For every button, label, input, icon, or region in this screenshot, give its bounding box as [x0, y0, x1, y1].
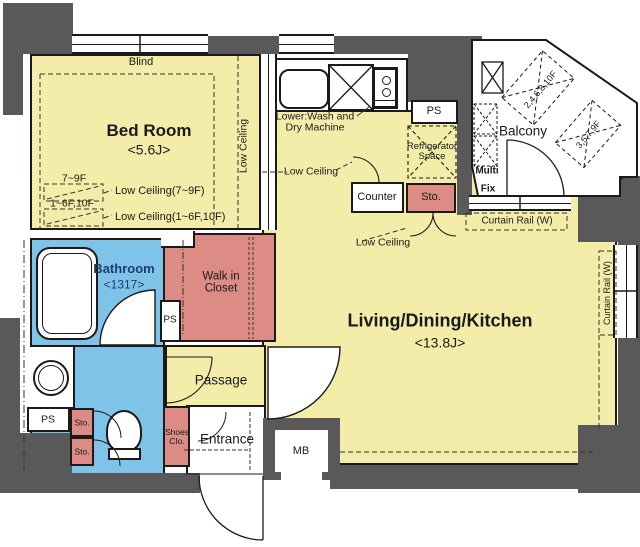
- balcony-floors-a-label: 2,4,6,8,10F: [523, 69, 560, 110]
- floor-plan: Blind Bed Room <5.6J> Low Ceiling 7~9F L…: [0, 0, 640, 547]
- bathroom-size: <1317>: [104, 279, 145, 292]
- wall-washroom-corner: [20, 433, 72, 473]
- bathroom-name: Bathroom: [93, 262, 154, 276]
- bedroom-size: <5.6J>: [128, 142, 171, 157]
- mb-label: MB: [293, 446, 310, 458]
- wall-bottom-ldk: [330, 465, 585, 489]
- partition-bedroom-ldk: [259, 54, 277, 230]
- blind-label: Blind: [129, 57, 153, 69]
- walk-in-closet-notch: [161, 231, 195, 248]
- wall-balcony-corner: [578, 176, 640, 242]
- low-ceiling-floors-1: 7~9F: [62, 173, 86, 184]
- wash-dry-line1: Lower:Wash and: [276, 111, 354, 123]
- ldk-name: Living/Dining/Kitchen: [348, 311, 533, 330]
- ldk-size: <13.8J>: [415, 335, 466, 350]
- balcony-name: Balcony: [499, 125, 547, 140]
- wash-dry-line2: Dry Machine: [286, 122, 345, 134]
- sto-2-label: Sto.: [74, 447, 89, 456]
- fix-label: Fix: [481, 185, 495, 196]
- ps-bottom-label: PS: [41, 414, 55, 425]
- curtain-rail-top-label: Curtain Rail (W): [481, 217, 552, 228]
- balcony-fixture: [601, 155, 624, 180]
- bedroom-name: Bed Room: [107, 122, 192, 140]
- shoes-closet-label: Shoes Clo.: [165, 428, 189, 446]
- washbasin-inner-line: [38, 365, 64, 391]
- room-ldk: [262, 110, 617, 465]
- partition-rail-line: [268, 54, 269, 230]
- wash-dry-label: Lower:Wash and Dry Machine: [276, 112, 354, 135]
- stove-burner-icon: [382, 88, 391, 97]
- wall-left-column: [0, 318, 20, 478]
- ps-top-label: PS: [427, 106, 442, 118]
- low-ceiling-text-1: Low Ceiling(7~9F): [115, 186, 205, 198]
- bedroom-low-ceiling-label: Low Ceiling: [238, 119, 249, 173]
- low-ceiling-text-2: Low Ceiling(1~6F,10F): [115, 212, 225, 224]
- wall-bottom-right-block: [578, 425, 640, 493]
- wall-top-left-column: [3, 3, 23, 115]
- balcony-unit-box-icon: [482, 62, 503, 93]
- toilet-bowl: [106, 410, 142, 452]
- stove-burner-icon: [382, 76, 391, 85]
- sto-1-label: Sto.: [74, 418, 89, 427]
- toilet-tank: [108, 448, 141, 460]
- low-ceiling-floors-2: 1~6F,10F: [50, 198, 94, 209]
- shoes-line2: Clo.: [169, 436, 184, 446]
- counter-label: Counter: [357, 192, 396, 204]
- window-kitchen-top: [279, 34, 334, 54]
- window-balcony: [469, 195, 571, 211]
- sto-kitchen-label: Sto.: [421, 192, 441, 204]
- wic-line1: Walk in: [202, 271, 239, 283]
- walk-in-closet-name: Walk in Closet: [202, 271, 239, 296]
- refrigerator-line2: Space: [419, 151, 446, 162]
- fixture-circle-icon: [608, 166, 619, 177]
- wall-kitchen-block: [408, 50, 472, 102]
- low-ceiling-ldk-label: Low Ceiling: [356, 237, 410, 248]
- passage-name: Passage: [195, 374, 248, 389]
- wash-dry-machine-box: [328, 64, 374, 111]
- window-right: [613, 245, 638, 338]
- washbasin-bowl: [33, 360, 69, 396]
- stove-grill-line: [375, 100, 395, 101]
- wic-line2: Closet: [205, 283, 238, 295]
- curtain-rail-right-label: Curtain Rail (W): [603, 261, 613, 325]
- entrance-name: Entrance: [200, 433, 254, 448]
- kitchen-sink: [279, 69, 329, 109]
- wall-top-mid: [207, 36, 281, 54]
- wall-bottom-left-band: [0, 473, 200, 493]
- bathtub: [36, 247, 98, 340]
- bathtub-inner-line: [42, 253, 92, 334]
- refrigerator-label: Refrigerator Space: [407, 142, 457, 163]
- meter-box-gap: [281, 472, 322, 482]
- stove: [372, 67, 398, 109]
- window-bedroom-top: [72, 34, 208, 54]
- multi-label: Multi: [475, 167, 498, 178]
- low-ceiling-kitchen-label: Low Ceiling: [284, 166, 338, 177]
- ps-mid-label: PS: [163, 316, 176, 327]
